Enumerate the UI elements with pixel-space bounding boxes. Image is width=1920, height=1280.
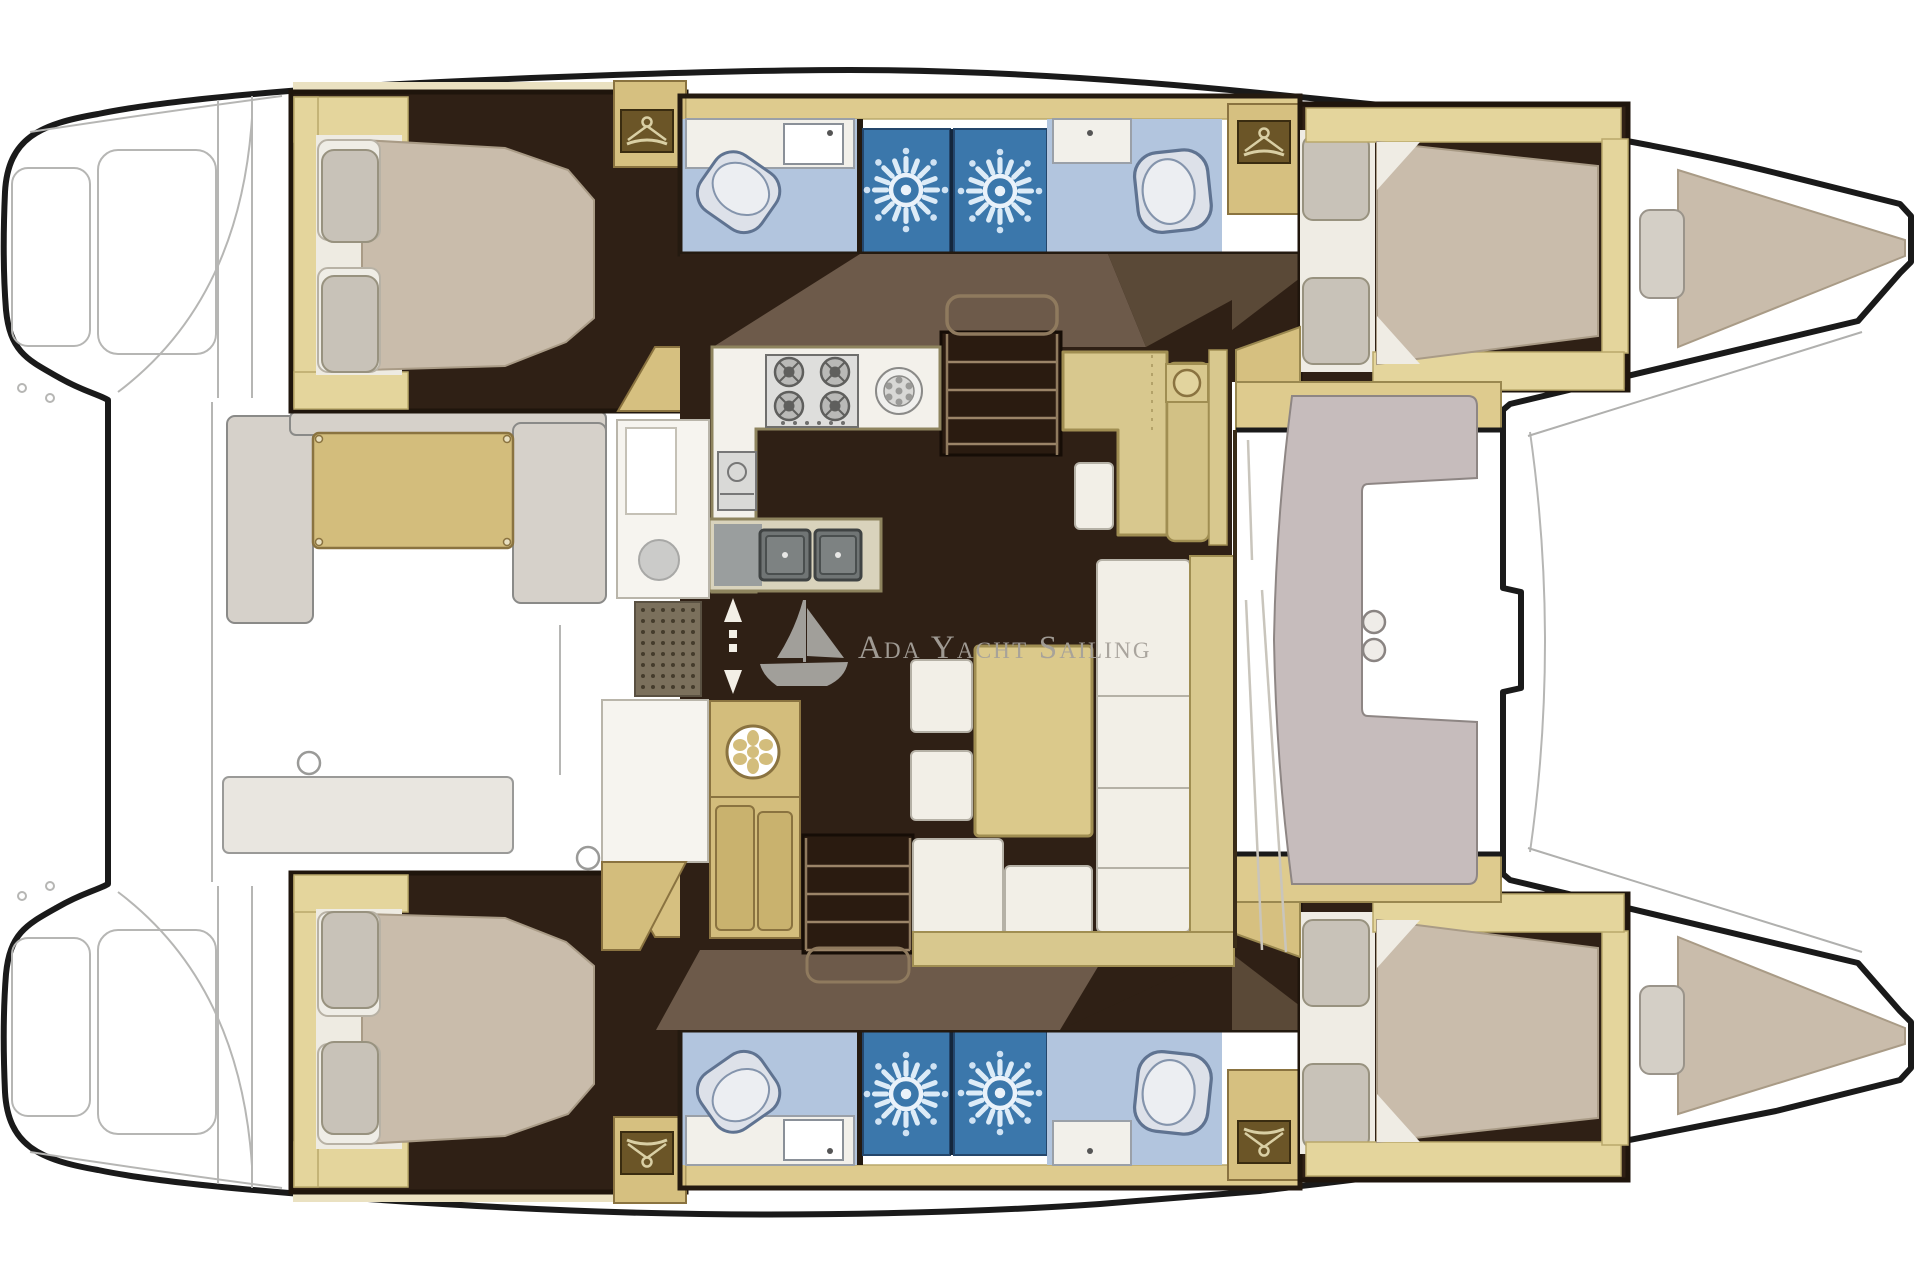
svg-text:Ada Yacht Sailing: Ada Yacht Sailing — [858, 630, 1152, 666]
